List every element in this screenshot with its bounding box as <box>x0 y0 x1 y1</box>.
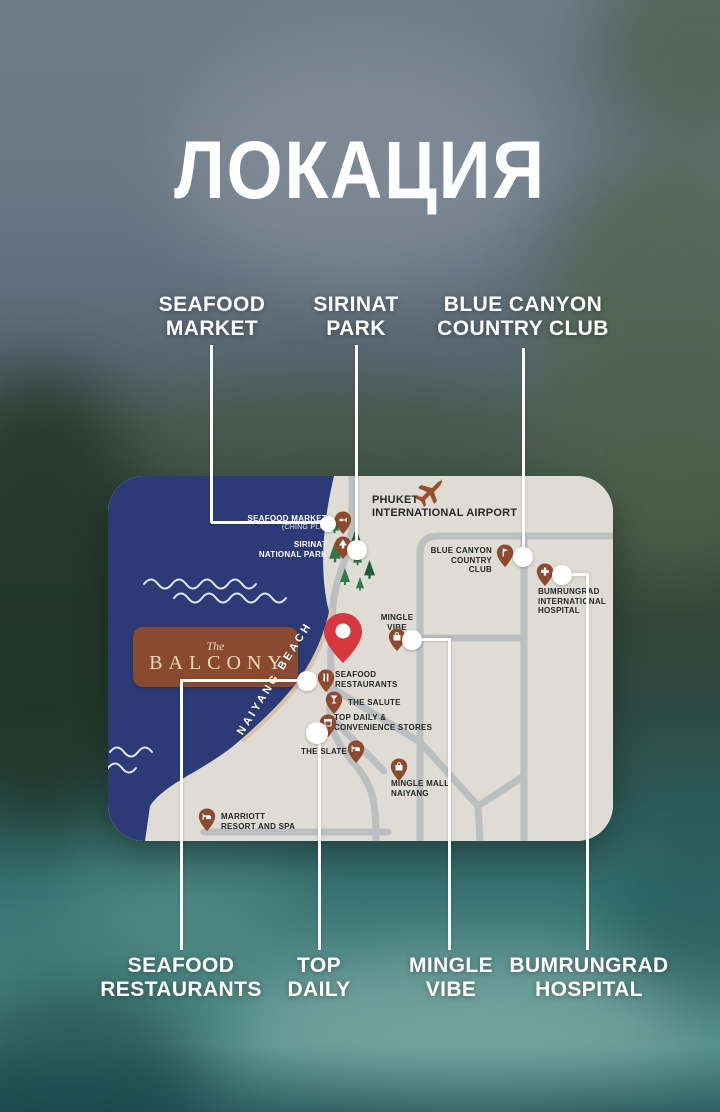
seafood-restaurants-pin cutlery-icon <box>317 669 335 693</box>
map-card: PHUKET INTERNATIONAL AIRPORT The BALCONY… <box>108 476 613 841</box>
pool-dark-corner <box>0 990 210 1112</box>
label-line: HOSPITAL <box>538 606 606 616</box>
balcony-location-pin <box>323 612 363 664</box>
marriott-label: MARRIOTT RESORT AND SPA <box>221 812 295 831</box>
label-line: BUMRUNGRAD <box>538 587 606 597</box>
blue-canyon-label: BLUE CANYON COUNTRY CLUB <box>431 546 492 575</box>
label-line: TOP DAILY & <box>334 713 432 723</box>
callout-line: VIBE <box>409 978 493 1002</box>
callout-sirinat-park: SIRINAT PARK <box>313 293 398 341</box>
seafood-market-pin fish-icon <box>334 511 352 535</box>
node-blue-canyon <box>513 547 533 567</box>
callout-line: MARKET <box>159 317 266 341</box>
label-line: BLUE CANYON <box>431 546 492 556</box>
label-line: INTERNATIONAL <box>538 597 606 607</box>
node-seafood-restaurants <box>297 671 317 691</box>
the-salute-pin cocktail-icon <box>325 691 343 715</box>
label-line: SEAFOOD <box>335 670 398 680</box>
callout-line: PARK <box>313 317 398 341</box>
the-salute-label: THE SALUTE <box>348 698 401 708</box>
callout-line: HOSPITAL <box>509 978 668 1002</box>
callout-line: SEAFOOD <box>159 293 266 317</box>
location-slide: ЛОКАЦИЯ SEAFOOD MARKET SIRINAT PARK BLUE… <box>0 0 720 1112</box>
connector-seafood-restaurants-h <box>181 679 307 682</box>
connector-sirinat-v <box>355 345 358 547</box>
label-line: CLUB <box>431 565 492 575</box>
connector-bumrungrad-v <box>586 573 589 950</box>
sirinat-park-label: SIRINAT NATIONAL PARK <box>259 540 327 559</box>
node-mingle-vibe <box>402 630 422 650</box>
label-line: COUNTRY <box>431 556 492 566</box>
label-line: NATIONAL PARK <box>259 550 327 560</box>
label-line: THE SALUTE <box>348 698 401 708</box>
callout-line: MINGLE <box>409 954 493 978</box>
marriott-pin bed-icon <box>198 808 216 832</box>
page-title: ЛОКАЦИЯ <box>43 124 677 218</box>
label-line: MINGLE <box>376 613 418 623</box>
callout-line: BUMRUNGRAD <box>509 954 668 978</box>
label-line: (CHING PLA) <box>248 524 328 532</box>
label-line: RESORT AND SPA <box>221 822 295 832</box>
callout-line: SIRINAT <box>313 293 398 317</box>
node-sirinat <box>347 540 367 560</box>
callout-blue-canyon: BLUE CANYON COUNTRY CLUB <box>437 293 609 341</box>
connector-seafood-restaurants-v <box>180 679 183 950</box>
bumrungrad-label: BUMRUNGRAD INTERNATIONAL HOSPITAL <box>538 587 606 616</box>
blue-canyon-pin golf-flag-icon <box>496 544 514 568</box>
callout-seafood-restaurants: SEAFOOD RESTAURANTS <box>100 954 262 1002</box>
logo-script: The <box>207 641 225 651</box>
node-bumrungrad <box>552 565 572 585</box>
callout-bumrungrad: BUMRUNGRAD HOSPITAL <box>509 954 668 1002</box>
callout-line: DAILY <box>287 978 350 1002</box>
connector-blue-canyon-v <box>522 348 525 554</box>
callout-line: TOP <box>287 954 350 978</box>
callout-line: RESTAURANTS <box>100 978 262 1002</box>
label-line: CONVENIENCE STORES <box>334 723 432 733</box>
connector-top-daily-v <box>318 733 321 950</box>
label-line: RESTAURANTS <box>335 680 398 690</box>
label-line: MARRIOTT <box>221 812 295 822</box>
logo-name: BALCONY <box>149 651 288 675</box>
connector-seafood-market-h <box>211 521 328 524</box>
callout-top-daily: TOP DAILY <box>287 954 350 1002</box>
label-line: SIRINAT <box>259 540 327 550</box>
node-top-daily <box>306 722 328 744</box>
callout-line: SEAFOOD <box>100 954 262 978</box>
label-line: NAIYANG <box>391 789 449 799</box>
callout-seafood-market: SEAFOOD MARKET <box>159 293 266 341</box>
label-line: THE SLATE <box>301 747 345 757</box>
top-daily-label: TOP DAILY & CONVENIENCE STORES <box>334 713 432 732</box>
seafood-restaurants-label: SEAFOOD RESTAURANTS <box>335 670 398 689</box>
callout-mingle-vibe: MINGLE VIBE <box>409 954 493 1002</box>
connector-seafood-market-v <box>210 345 213 523</box>
connector-mingle-vibe-v <box>448 638 451 950</box>
callout-line: COUNTRY CLUB <box>437 317 609 341</box>
node-seafood-market <box>320 516 336 532</box>
mingle-mall-pin shopping-bag-icon <box>390 758 408 782</box>
airplane-icon <box>414 476 448 510</box>
the-slate-pin bed-icon <box>347 740 365 764</box>
the-slate-label: THE SLATE <box>301 747 345 757</box>
callout-line: BLUE CANYON <box>437 293 609 317</box>
